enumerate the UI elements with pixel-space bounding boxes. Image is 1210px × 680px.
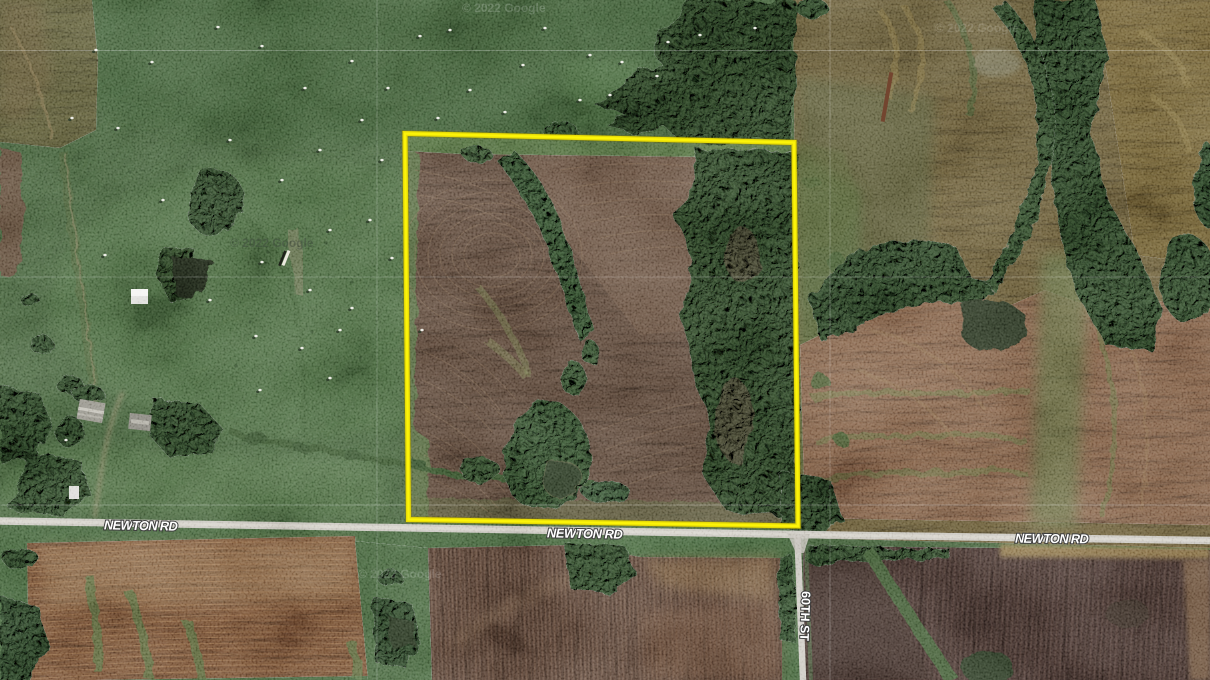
svg-text:NEWTON RD: NEWTON RD xyxy=(1015,531,1090,547)
svg-text:© 2022 Google: © 2022 Google xyxy=(230,236,314,250)
svg-text:NEWTON RD: NEWTON RD xyxy=(547,525,624,541)
svg-text:© 2022 Google: © 2022 Google xyxy=(358,567,442,581)
svg-text:© 2022 Google: © 2022 Google xyxy=(935,21,1019,35)
svg-text:60TH ST: 60TH ST xyxy=(797,591,813,642)
svg-text:© 2022 Google: © 2022 Google xyxy=(462,1,546,15)
svg-text:NEWTON RD: NEWTON RD xyxy=(104,517,179,533)
